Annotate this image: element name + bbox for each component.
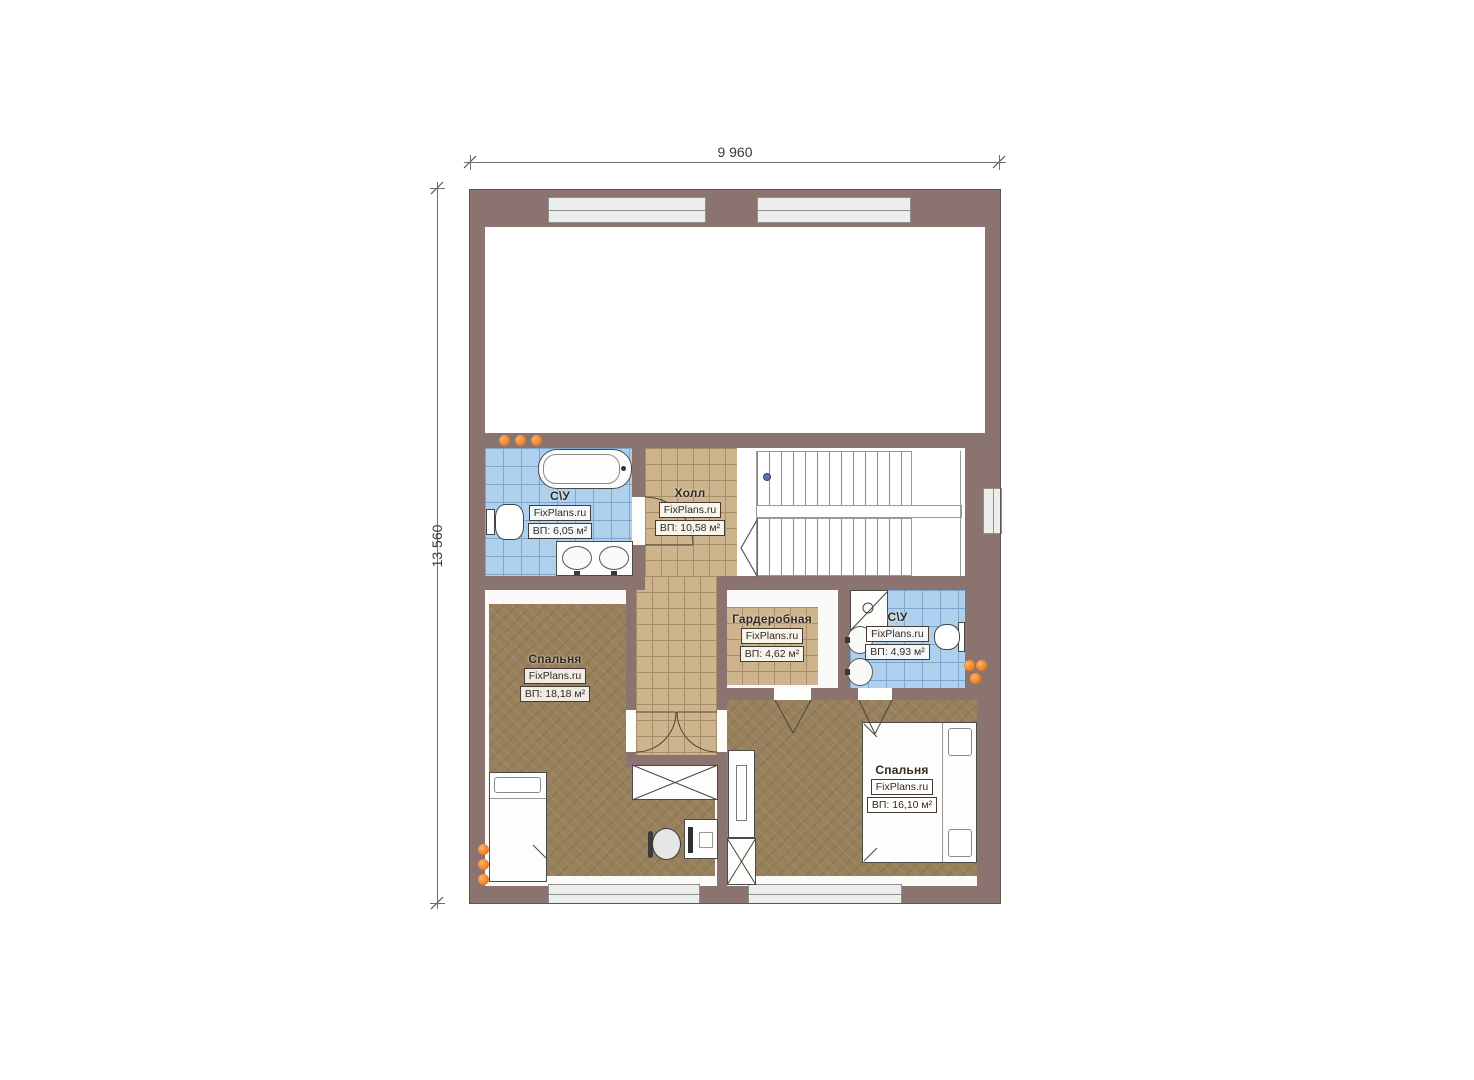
room-brand: FixPlans.ru <box>529 505 592 521</box>
sink-tap-icon <box>574 571 580 575</box>
closet-icon <box>727 838 756 885</box>
room-name: Спальня <box>875 763 928 777</box>
radiator-icon <box>964 660 975 671</box>
floor-plan-page: 9 960 13 560 <box>0 0 1474 1080</box>
room-brand: FixPlans.ru <box>871 779 934 795</box>
chair-icon <box>648 826 682 862</box>
room-brand: FixPlans.ru <box>741 628 804 644</box>
room-brand: FixPlans.ru <box>866 626 929 642</box>
radiator-icon <box>478 859 489 870</box>
room-area: ВП: 4,62 м² <box>740 646 804 662</box>
sink-icon <box>562 546 592 570</box>
room-name: С\У <box>887 610 907 624</box>
sink-tap-icon <box>845 669 850 675</box>
dimension-ext-left-bottom <box>430 903 445 904</box>
blanket-line <box>490 798 546 799</box>
sink-icon <box>847 658 873 686</box>
room-area: ВП: 6,05 м² <box>528 523 592 539</box>
room-label-bedroom-right: Спальня FixPlans.ru ВП: 16,10 м² <box>852 763 952 813</box>
pillow-icon <box>948 829 972 857</box>
bed-left-icon <box>489 772 547 882</box>
radiator-icon <box>970 673 981 684</box>
dimension-line-top <box>464 162 1006 163</box>
room-area: ВП: 4,93 м² <box>865 644 929 660</box>
room-name: Спальня <box>528 652 581 666</box>
vanity-double-icon <box>556 541 633 576</box>
toilet-tank <box>486 509 495 535</box>
room-label-bedroom-left: Спальня FixPlans.ru ВП: 18,18 м² <box>500 652 610 702</box>
pillow-icon <box>948 728 972 756</box>
sink-tap-icon <box>845 637 850 643</box>
room-area: ВП: 10,58 м² <box>655 520 725 536</box>
cabinet-icon <box>728 750 755 838</box>
dimension-height-label: 13 560 <box>429 503 445 589</box>
radiator-icon <box>478 874 489 885</box>
cabinet-rail <box>736 765 747 821</box>
dimension-ext-top-right <box>999 155 1000 170</box>
radiator-icon <box>976 660 987 671</box>
bathtub-inner <box>543 454 620 484</box>
sink-tap-icon <box>611 571 617 575</box>
radiator-icon <box>478 844 489 855</box>
radiator-icon <box>499 435 510 446</box>
bathtub-tap-icon <box>621 466 626 471</box>
radiator-icon <box>531 435 542 446</box>
room-name: С\У <box>550 489 570 503</box>
chair-seat <box>652 828 681 860</box>
monitor-icon <box>688 827 693 853</box>
desk-item <box>699 832 713 848</box>
dimension-ext-top-left <box>470 155 471 170</box>
desk-icon <box>684 819 718 859</box>
pillow-icon <box>494 777 541 793</box>
room-name: Холл <box>675 486 706 500</box>
sink-icon <box>599 546 629 570</box>
dimension-width-label: 9 960 <box>700 144 770 160</box>
room-name: Гардеробная <box>732 612 812 626</box>
room-area: ВП: 16,10 м² <box>867 797 937 813</box>
room-label-bathroom-right: С\У FixPlans.ru ВП: 4,93 м² <box>855 610 940 660</box>
dimension-ext-left-top <box>430 188 445 189</box>
radiator-icon <box>515 435 526 446</box>
room-brand: FixPlans.ru <box>524 668 587 684</box>
room-label-hall: Холл FixPlans.ru ВП: 10,58 м² <box>642 486 738 536</box>
chair-back <box>648 831 653 858</box>
room-area: ВП: 18,18 м² <box>520 686 590 702</box>
room-label-wardrobe: Гардеробная FixPlans.ru ВП: 4,62 м² <box>726 612 818 662</box>
bathtub-icon <box>538 449 632 489</box>
room-brand: FixPlans.ru <box>659 502 722 518</box>
room-label-bathroom-top: С\У FixPlans.ru ВП: 6,05 м² <box>512 489 608 539</box>
closet-icon <box>632 765 718 800</box>
